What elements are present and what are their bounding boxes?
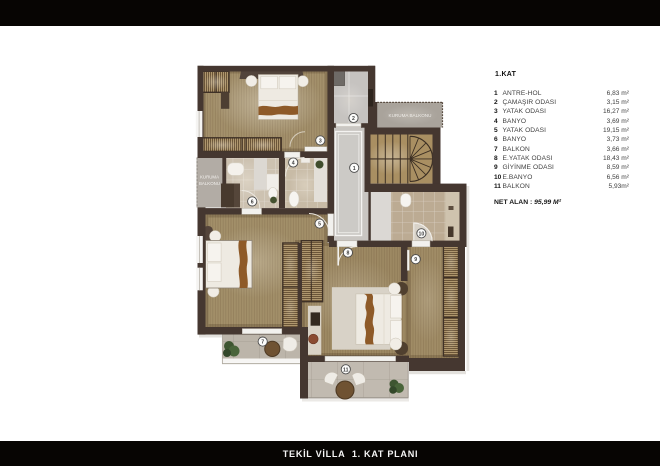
svg-text:11: 11 xyxy=(343,367,349,373)
svg-text:10: 10 xyxy=(419,231,425,237)
svg-text:KURUMA: KURUMA xyxy=(200,175,219,180)
svg-text:2: 2 xyxy=(352,116,355,122)
svg-text:7: 7 xyxy=(261,340,264,346)
svg-text:1: 1 xyxy=(353,166,356,172)
svg-text:BALKONU: BALKONU xyxy=(199,181,220,186)
svg-text:6: 6 xyxy=(251,199,254,205)
svg-text:3: 3 xyxy=(319,138,322,144)
svg-text:KURUMA BALKONU: KURUMA BALKONU xyxy=(389,113,432,118)
svg-text:4: 4 xyxy=(292,161,295,167)
svg-text:9: 9 xyxy=(414,257,417,263)
svg-text:5: 5 xyxy=(318,222,321,228)
svg-text:8: 8 xyxy=(346,251,349,257)
